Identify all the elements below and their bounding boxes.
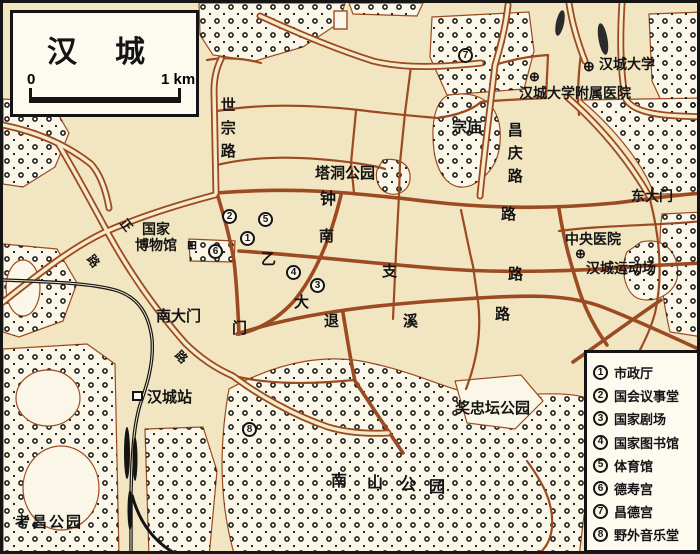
- title-box: 汉城 0 1 km: [10, 10, 199, 117]
- road-label-euljiro-3: 路: [508, 267, 523, 283]
- road-label-namdaemunro-3: 门: [232, 321, 247, 337]
- university-mark-icon: ⊕: [583, 59, 595, 73]
- road-label-changgyeongno: 昌庆路: [506, 122, 522, 191]
- label-tapdong-park: 塔洞公园: [315, 166, 375, 182]
- road-label-jongno-1: 钟: [320, 192, 336, 209]
- hospital-cross-icon: ⊕: [575, 247, 586, 260]
- legend-row: 2国会议事堂: [587, 384, 698, 407]
- museum-mark-icon: ⊞: [187, 239, 197, 251]
- road-label-namdaemunro-2: 大: [294, 295, 309, 311]
- legend-num-4: 4: [593, 435, 608, 450]
- legend-row: 6德寿宫: [587, 477, 698, 500]
- label-national-museum-line2: 博物馆: [135, 238, 177, 253]
- rail-yard: [133, 437, 138, 481]
- map-marker-6-deoksugung: 6: [208, 244, 223, 259]
- legend-row: 8野外音乐堂: [587, 523, 698, 546]
- rail-yard: [124, 427, 130, 479]
- label-namsan-park-4: 园: [429, 480, 445, 497]
- map-marker-2-national-assembly: 2: [222, 209, 237, 224]
- legend-label-2: 国会议事堂: [614, 386, 679, 405]
- legend-label-8: 野外音乐堂: [614, 525, 679, 544]
- station-symbol: [132, 391, 143, 401]
- legend-label-1: 市政厅: [614, 363, 653, 382]
- legend-num-7: 7: [593, 504, 608, 519]
- label-seoul-station: 汉城站: [147, 390, 192, 406]
- road-label-euljiro-1: 乙: [261, 252, 276, 268]
- legend-row: 7昌德宫: [587, 500, 698, 523]
- label-gochang-park: 考昌公园: [15, 515, 83, 531]
- road-label-toegyero-1: 退: [324, 314, 339, 330]
- map-marker-8-outdoor-music-hall: 8: [242, 422, 257, 437]
- legend-row: 4国家图书馆: [587, 431, 698, 454]
- road-label-sejongno: 世宗路: [219, 97, 235, 166]
- legend-label-7: 昌德宫: [614, 502, 653, 521]
- label-dongdaemun: 东大门: [631, 189, 673, 204]
- scale-tick-left: [29, 88, 32, 103]
- label-seoul-stadium: 汉城运动场: [586, 261, 656, 276]
- label-central-hospital: 中央医院: [565, 232, 621, 247]
- map-marker-5-gymnasium: 5: [258, 212, 273, 227]
- legend-row: 5体育馆: [587, 454, 698, 477]
- road-label-jongno-2: 路: [501, 207, 516, 223]
- road-label-euljiro-2: 支: [382, 264, 397, 280]
- label-namdaemun-gate: 南大门: [156, 309, 201, 325]
- label-namsan-park-3: 公: [400, 478, 416, 495]
- road-label-toegyero-3: 路: [495, 307, 510, 323]
- label-seoul-university: 汉城大学: [599, 57, 655, 72]
- scale-zero-label: 0: [27, 71, 35, 88]
- legend-num-6: 6: [593, 481, 608, 496]
- scale-km-label: 1 km: [161, 71, 195, 88]
- seoul-city-map: 世宗路 昌庆路 钟 路 乙 支 路 退 溪 路 南 大 门 正 路 路 塔洞公园…: [0, 0, 700, 554]
- legend-label-3: 国家剧场: [614, 409, 666, 428]
- map-marker-1-city-hall: 1: [240, 231, 255, 246]
- hospital-cross-icon: ⊕: [529, 70, 540, 83]
- legend-label-5: 体育馆: [614, 456, 653, 475]
- legend-row: 3国家剧场: [587, 407, 698, 430]
- legend-num-2: 2: [593, 388, 608, 403]
- legend-box: 1市政厅 2国会议事堂 3国家剧场 4国家图书馆 5体育馆 6德寿宫 7昌德宫 …: [584, 350, 700, 553]
- label-jangchungdan-park: 奖忠坛公园: [455, 401, 530, 417]
- legend-label-6: 德寿宫: [614, 479, 653, 498]
- legend-num-3: 3: [593, 411, 608, 426]
- map-title: 汉城: [47, 27, 183, 71]
- label-jongmyo: 宗庙: [452, 120, 482, 136]
- road-label-namdaemunro-1: 南: [319, 229, 334, 245]
- label-university-hospital: 汉城大学附属医院: [519, 86, 631, 101]
- map-marker-7-changdeokgung: 7: [458, 48, 473, 63]
- map-marker-4-national-library: 4: [286, 265, 301, 280]
- scale-bar: [29, 97, 181, 103]
- rail-yard: [128, 490, 133, 530]
- road-label-toegyero-2: 溪: [403, 314, 418, 330]
- legend-row: 1市政厅: [587, 361, 698, 384]
- building-block: [334, 11, 347, 29]
- legend-label-4: 国家图书馆: [614, 433, 679, 452]
- label-namsan-park-1: 南: [331, 474, 347, 491]
- label-namsan-park-2: 山: [367, 476, 383, 493]
- label-national-museum-line1: 国家: [142, 222, 170, 237]
- scale-tick-right: [178, 88, 181, 103]
- legend-num-1: 1: [593, 365, 608, 380]
- map-marker-3-national-theater: 3: [310, 278, 325, 293]
- legend-num-5: 5: [593, 458, 608, 473]
- legend-num-8: 8: [593, 527, 608, 542]
